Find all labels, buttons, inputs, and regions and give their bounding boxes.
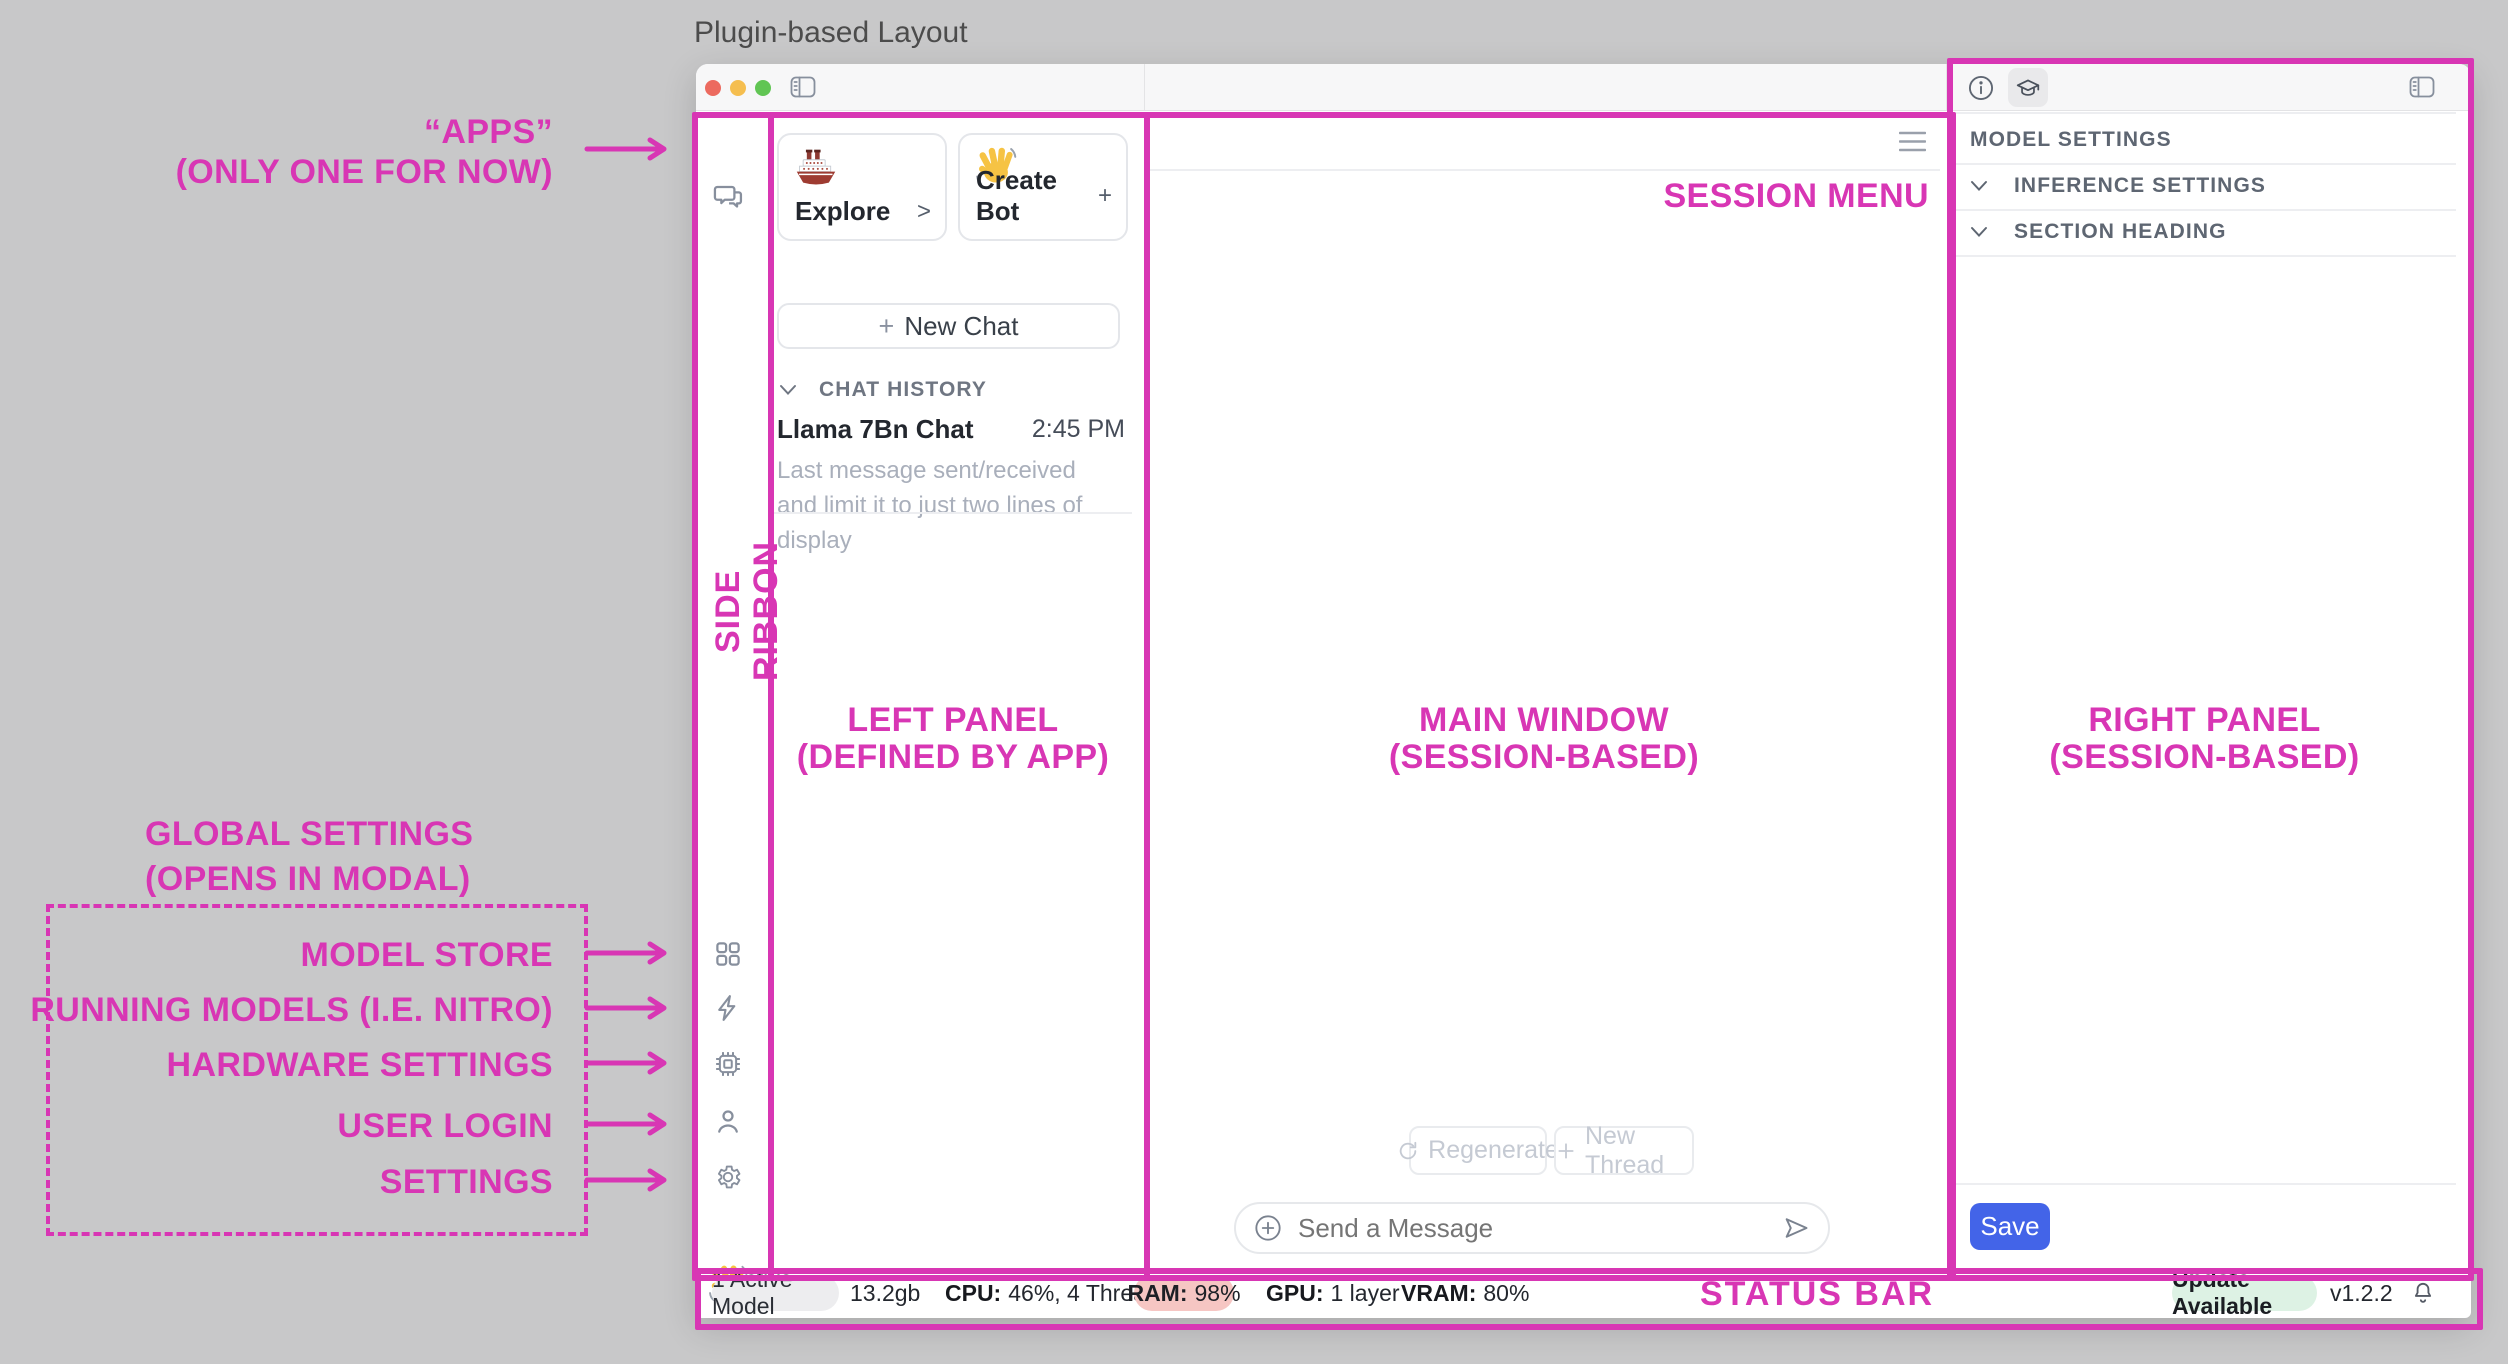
right-panel: MODEL SETTINGS INFERENCE SETTINGS SECTIO… bbox=[1953, 64, 2456, 1318]
section-heading-row[interactable]: SECTION HEADING bbox=[1970, 220, 2227, 244]
annotation-apps: “APPS” (ONLY ONE FOR NOW) bbox=[176, 112, 553, 192]
section-heading-label: SECTION HEADING bbox=[2014, 220, 2227, 244]
inference-settings-row[interactable]: INFERENCE SETTINGS bbox=[1970, 174, 2266, 198]
annotation-global-settings-line2: (OPENS IN MODAL) bbox=[145, 857, 473, 902]
ram-label: RAM: bbox=[1127, 1280, 1187, 1307]
annotation-left-panel-line2: (DEFINED BY APP) bbox=[768, 739, 1138, 776]
app-window: Explore > bbox=[696, 64, 2471, 1318]
status-bar: 1 Active Model 13.2gb CPU: 46%, 4 Thread… bbox=[702, 1274, 2465, 1312]
composer-input[interactable] bbox=[1296, 1212, 1768, 1245]
titlebar-divider-left bbox=[1144, 64, 1145, 110]
annotation-global-settings: GLOBAL SETTINGS (OPENS IN MODAL) bbox=[145, 812, 473, 902]
main-header-divider bbox=[1148, 169, 1940, 171]
annotation-apps-line1: “APPS” bbox=[176, 112, 553, 152]
graduation-cap-icon bbox=[2015, 75, 2041, 101]
annotation-hardware-settings: HARDWARE SETTINGS bbox=[167, 1046, 553, 1084]
gpu-value: 1 layer bbox=[1331, 1280, 1400, 1307]
create-bot-card-plus: + bbox=[1098, 182, 1112, 210]
annotation-side-ribbon: SIDE RIBBON bbox=[709, 505, 749, 717]
right-divider-1 bbox=[1953, 163, 2456, 165]
annotation-running-models: RUNNING MODELS (I.E. NITRO) bbox=[30, 991, 553, 1029]
annotation-left-panel-line1: LEFT PANEL bbox=[768, 702, 1138, 739]
annotation-arrow-settings bbox=[584, 1168, 680, 1192]
version-label: v1.2.2 bbox=[2330, 1274, 2393, 1312]
cpu-label: CPU: bbox=[945, 1280, 1001, 1307]
right-divider-2 bbox=[1953, 209, 2456, 211]
new-thread-label: New Thread bbox=[1585, 1122, 1692, 1180]
annotation-settings: SETTINGS bbox=[380, 1163, 553, 1201]
annotation-main-window: MAIN WINDOW (SESSION-BASED) bbox=[1144, 702, 1944, 776]
message-composer[interactable] bbox=[1234, 1202, 1830, 1254]
annotation-model-store: MODEL STORE bbox=[300, 936, 553, 974]
ship-emoji-icon bbox=[794, 146, 838, 190]
annotation-arrow-apps bbox=[584, 137, 680, 161]
info-icon[interactable] bbox=[1967, 74, 1995, 102]
annotation-session-menu: SESSION MENU bbox=[1663, 177, 1929, 215]
new-thread-button[interactable]: New Thread bbox=[1554, 1126, 1694, 1175]
annotation-arrow-model-store bbox=[584, 941, 680, 965]
model-store-icon[interactable] bbox=[713, 939, 743, 969]
refresh-icon bbox=[1397, 1140, 1419, 1162]
user-icon[interactable] bbox=[713, 1106, 743, 1136]
chevron-down-icon bbox=[779, 384, 797, 396]
settings-gear-icon[interactable] bbox=[713, 1162, 743, 1192]
right-footer-divider bbox=[1953, 1183, 2456, 1185]
hamburger-menu-icon[interactable] bbox=[1899, 131, 1926, 152]
annotation-global-settings-line1: GLOBAL SETTINGS bbox=[145, 812, 473, 857]
model-size-value: 13.2gb bbox=[850, 1280, 920, 1307]
assistant-tab-active[interactable] bbox=[2008, 68, 2048, 107]
zoom-button[interactable] bbox=[755, 80, 771, 96]
annotation-right-panel-line1: RIGHT PANEL bbox=[1947, 702, 2462, 739]
page-title: Plugin-based Layout bbox=[694, 16, 968, 50]
annotation-right-panel-line2: (SESSION-BASED) bbox=[1947, 739, 2462, 776]
vram-stat: VRAM: 80% bbox=[1401, 1274, 1529, 1312]
gpu-stat: GPU: 1 layer bbox=[1266, 1274, 1400, 1312]
chevron-down-icon bbox=[1970, 180, 1988, 192]
chat-app-icon[interactable] bbox=[712, 181, 744, 213]
gpu-label: GPU: bbox=[1266, 1280, 1324, 1307]
annotation-main-window-line1: MAIN WINDOW bbox=[1144, 702, 1944, 739]
active-model-badge: 1 Active Model bbox=[712, 1275, 839, 1311]
design-canvas: Plugin-based Layout bbox=[0, 0, 2508, 1364]
close-button[interactable] bbox=[705, 80, 721, 96]
chat-item-time: 2:45 PM bbox=[1032, 415, 1125, 444]
annotation-left-panel: LEFT PANEL (DEFINED BY APP) bbox=[768, 702, 1138, 776]
annotation-arrow-user-login bbox=[584, 1112, 680, 1136]
chat-history-heading: CHAT HISTORY bbox=[819, 378, 987, 402]
new-chat-button[interactable]: + New Chat bbox=[777, 303, 1120, 349]
titlebar-divider-right bbox=[1946, 64, 1947, 110]
annotation-status-bar: STATUS BAR bbox=[1700, 1275, 1934, 1313]
model-settings-heading: MODEL SETTINGS bbox=[1970, 128, 2172, 152]
hardware-icon[interactable] bbox=[713, 1049, 743, 1079]
chat-history-header[interactable]: CHAT HISTORY bbox=[779, 378, 987, 402]
right-divider-3 bbox=[1953, 255, 2456, 257]
vram-label: VRAM: bbox=[1401, 1280, 1476, 1307]
minimize-button[interactable] bbox=[730, 80, 746, 96]
annotation-main-window-line2: (SESSION-BASED) bbox=[1144, 739, 1944, 776]
create-bot-card[interactable]: Create Bot + bbox=[958, 133, 1128, 241]
chat-history-item[interactable]: Llama 7Bn Chat 2:45 PM Last message sent… bbox=[777, 414, 1125, 558]
new-chat-label: New Chat bbox=[904, 311, 1018, 342]
sidebar-toggle-icon[interactable] bbox=[790, 76, 816, 98]
explore-card[interactable]: Explore > bbox=[777, 133, 947, 241]
ram-value: 98% bbox=[1195, 1280, 1241, 1307]
chat-list-divider bbox=[774, 512, 1132, 514]
save-button[interactable]: Save bbox=[1970, 1203, 2050, 1250]
inference-settings-label: INFERENCE SETTINGS bbox=[2014, 174, 2266, 198]
create-bot-card-label: Create Bot bbox=[976, 165, 1098, 227]
running-models-icon[interactable] bbox=[713, 993, 743, 1023]
regenerate-button[interactable]: Regenerate bbox=[1409, 1126, 1547, 1175]
annotation-arrow-running-models bbox=[584, 996, 680, 1020]
bell-icon[interactable] bbox=[2410, 1280, 2436, 1306]
explore-card-label: Explore bbox=[795, 196, 890, 227]
chevron-down-icon bbox=[1970, 226, 1988, 238]
annotation-arrow-hardware bbox=[584, 1051, 680, 1075]
attach-plus-icon[interactable] bbox=[1254, 1214, 1282, 1242]
model-size-label: 13.2gb bbox=[850, 1274, 920, 1312]
panel-toggle-icon[interactable] bbox=[2409, 76, 2435, 98]
chat-item-preview: Last message sent/received and limit it … bbox=[777, 453, 1113, 558]
vram-value: 80% bbox=[1483, 1280, 1529, 1307]
version-value: v1.2.2 bbox=[2330, 1280, 2393, 1307]
regenerate-label: Regenerate bbox=[1428, 1136, 1559, 1165]
annotation-user-login: USER LOGIN bbox=[337, 1107, 553, 1145]
chat-item-title: Llama 7Bn Chat bbox=[777, 414, 974, 445]
annotation-right-panel: RIGHT PANEL (SESSION-BASED) bbox=[1947, 702, 2462, 776]
explore-card-chevron: > bbox=[917, 198, 931, 226]
annotation-apps-line2: (ONLY ONE FOR NOW) bbox=[176, 152, 553, 192]
update-badge[interactable]: Update Available bbox=[2172, 1275, 2317, 1311]
send-icon[interactable] bbox=[1782, 1214, 1810, 1242]
plus-icon bbox=[1556, 1141, 1576, 1161]
ram-badge: RAM: 98% bbox=[1134, 1275, 1234, 1311]
right-header-divider bbox=[1953, 112, 2456, 114]
plus-icon: + bbox=[879, 311, 895, 342]
